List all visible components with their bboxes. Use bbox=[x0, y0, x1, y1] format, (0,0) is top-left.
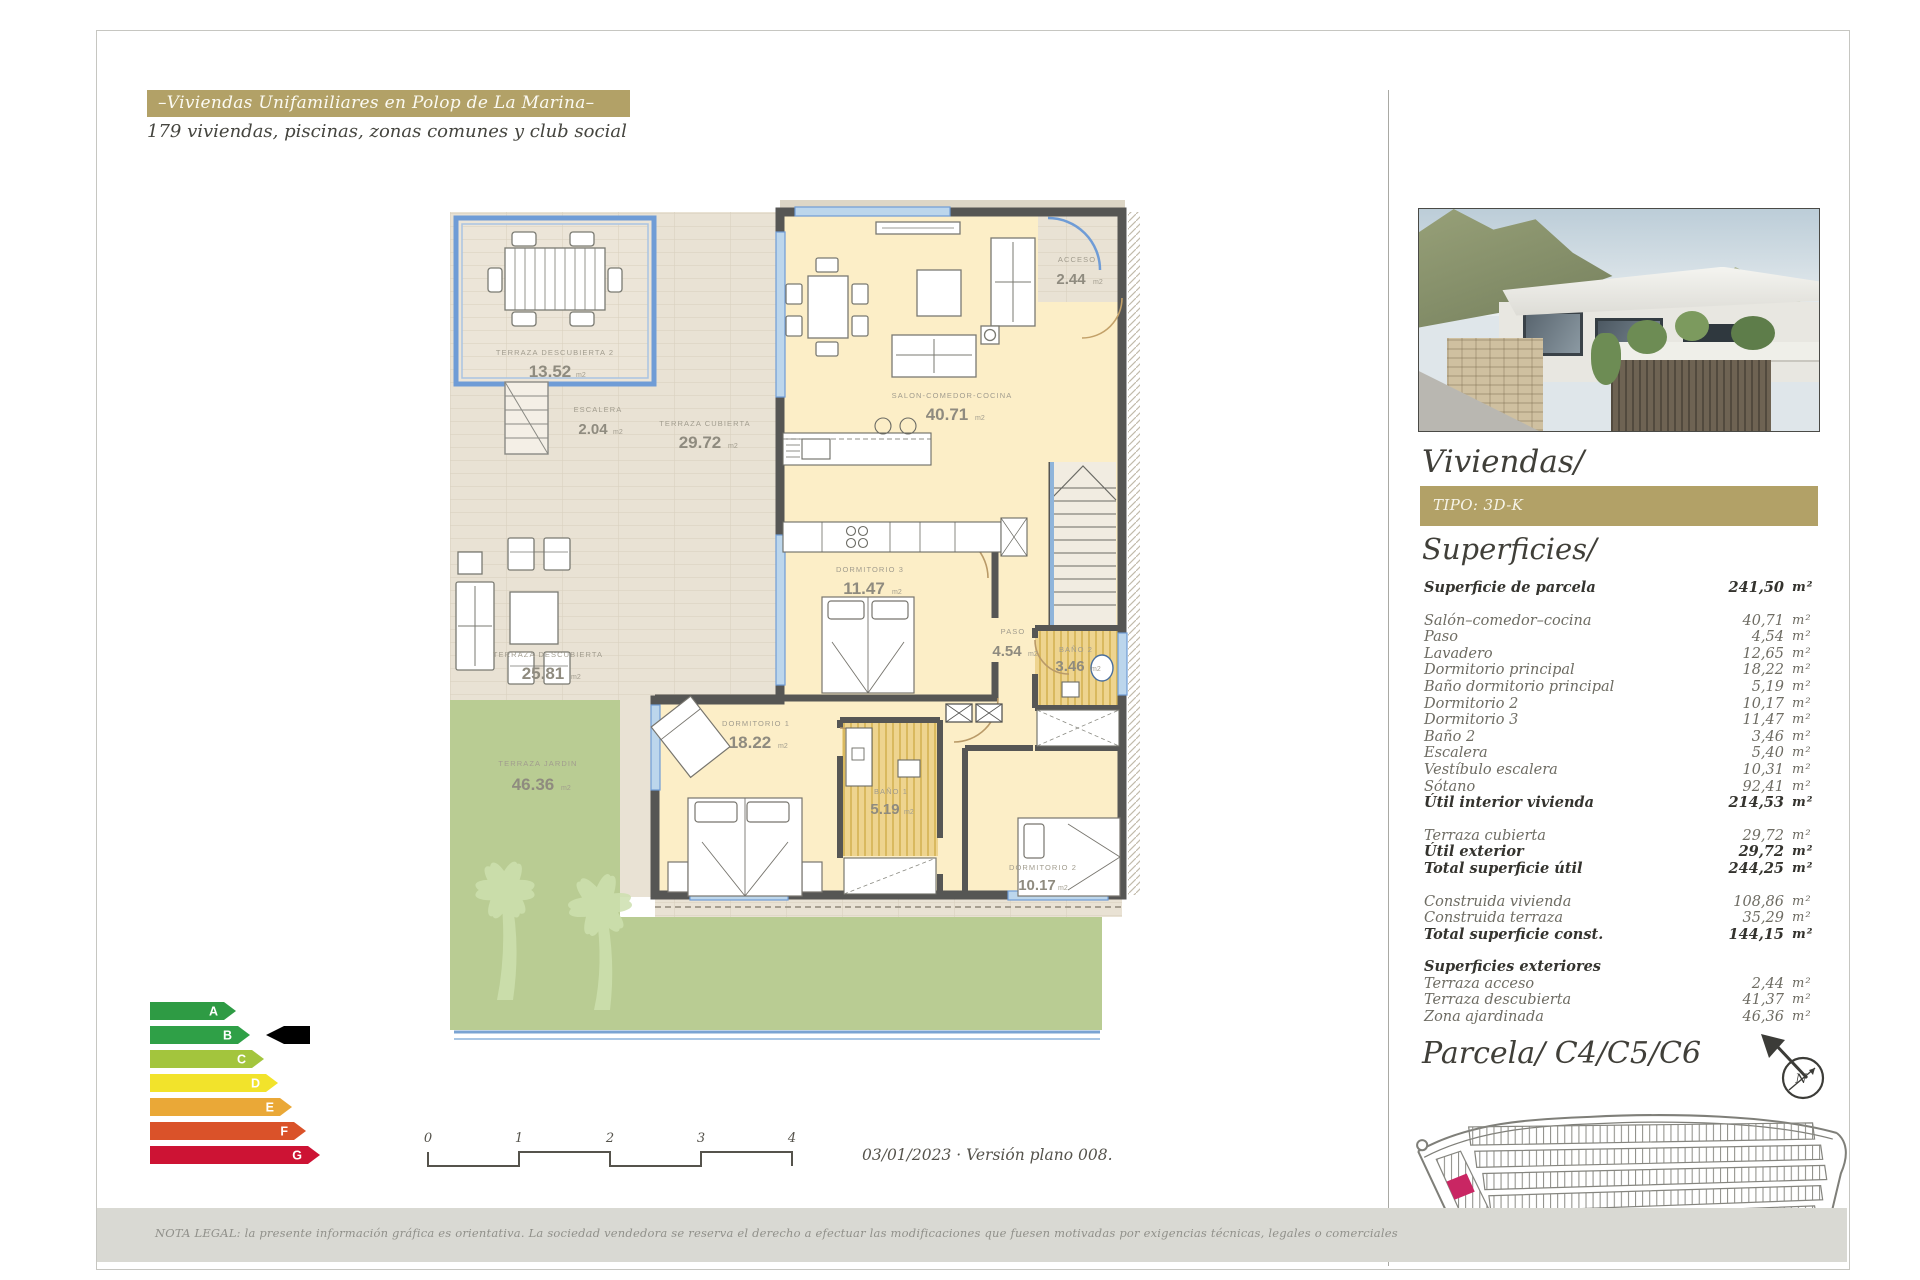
parcela-title: Parcela/ C4/C5/C6 bbox=[1422, 1036, 1701, 1071]
svg-text:m2: m2 bbox=[1028, 651, 1038, 658]
svg-text:m2: m2 bbox=[571, 674, 581, 681]
table-row: Escalera5,40m² bbox=[1424, 745, 1832, 762]
table-row: Terraza acceso2,44m² bbox=[1424, 976, 1832, 993]
svg-text:3.46: 3.46 bbox=[1055, 658, 1084, 675]
table-row: Zona ajardinada46,36m² bbox=[1424, 1009, 1832, 1026]
svg-text:N: N bbox=[1794, 1072, 1807, 1087]
table-row: Útil interior vivienda214,53m² bbox=[1424, 795, 1832, 812]
sidebar-divider bbox=[1388, 90, 1389, 1266]
svg-text:2.44: 2.44 bbox=[1056, 271, 1086, 288]
bed-dorm3 bbox=[822, 597, 914, 693]
scale-bar: 0 1 2 3 4 bbox=[420, 1128, 800, 1174]
svg-text:E: E bbox=[266, 1101, 274, 1115]
svg-text:0: 0 bbox=[424, 1131, 432, 1146]
svg-text:BAÑO 2: BAÑO 2 bbox=[1059, 645, 1093, 654]
table-row: Vestíbulo escalera10,31m² bbox=[1424, 762, 1832, 779]
svg-text:40.71: 40.71 bbox=[926, 405, 969, 424]
svg-text:10.17: 10.17 bbox=[1018, 877, 1056, 894]
svg-text:A: A bbox=[209, 1005, 218, 1019]
svg-text:4.54: 4.54 bbox=[992, 643, 1022, 660]
svg-text:11.47: 11.47 bbox=[843, 579, 885, 598]
svg-text:B: B bbox=[223, 1029, 232, 1043]
superficies-title: Superficies/ bbox=[1422, 532, 1597, 566]
svg-text:G: G bbox=[292, 1149, 302, 1163]
table-row: Paso4,54m² bbox=[1424, 629, 1832, 646]
svg-text:13.52: 13.52 bbox=[529, 362, 572, 381]
energy-label: A B C D E F G bbox=[150, 1002, 340, 1172]
svg-text:m2: m2 bbox=[561, 785, 571, 792]
svg-text:46.36: 46.36 bbox=[512, 775, 555, 794]
photo-plant bbox=[1627, 320, 1667, 354]
svg-text:m2: m2 bbox=[778, 743, 788, 750]
table-row: Terraza descubierta41,37m² bbox=[1424, 992, 1832, 1009]
svg-text:m2: m2 bbox=[1093, 279, 1103, 286]
photo-plant bbox=[1675, 311, 1709, 341]
table-row: Superficie de parcela241,50m² bbox=[1424, 580, 1832, 597]
sidebar-title: Viviendas/ bbox=[1422, 444, 1584, 480]
photo-plant bbox=[1591, 333, 1621, 385]
svg-text:m2: m2 bbox=[975, 415, 985, 422]
table-row: Superficies exteriores bbox=[1424, 959, 1832, 976]
svg-text:18.22: 18.22 bbox=[729, 733, 772, 752]
svg-text:BAÑO 1: BAÑO 1 bbox=[874, 787, 908, 796]
outdoor-lounge-set bbox=[456, 538, 570, 684]
svg-text:m2: m2 bbox=[904, 809, 914, 816]
svg-text:TERRAZA CUBIERTA: TERRAZA CUBIERTA bbox=[659, 419, 751, 428]
svg-text:2.04: 2.04 bbox=[578, 421, 608, 438]
table-row: Dormitorio 311,47m² bbox=[1424, 712, 1832, 729]
legal-note: NOTA LEGAL: la presente información gráf… bbox=[155, 1226, 1398, 1240]
table-row: Salón–comedor–cocina40,71m² bbox=[1424, 613, 1832, 630]
svg-text:DORMITORIO 3: DORMITORIO 3 bbox=[836, 565, 904, 574]
table-row: Total superficie útil244,25m² bbox=[1424, 861, 1832, 878]
svg-text:2: 2 bbox=[605, 1131, 614, 1146]
svg-text:m2: m2 bbox=[613, 429, 623, 436]
svg-text:D: D bbox=[251, 1077, 260, 1091]
svg-text:SALON-COMEDOR-COCINA: SALON-COMEDOR-COCINA bbox=[892, 391, 1013, 400]
tipo-badge: TIPO: 3D-K bbox=[1420, 486, 1818, 526]
table-row: Sótano92,41m² bbox=[1424, 779, 1832, 796]
svg-text:m2: m2 bbox=[1091, 666, 1101, 673]
svg-text:TERRAZA JARDIN: TERRAZA JARDIN bbox=[498, 759, 577, 768]
svg-text:25.81: 25.81 bbox=[522, 664, 565, 683]
page-subtitle: 179 viviendas, piscinas, zonas comunes y… bbox=[147, 121, 627, 142]
page-title: –Viviendas Unifamiliares en Polop de La … bbox=[147, 90, 630, 117]
energy-rating-pointer bbox=[266, 1026, 310, 1044]
svg-text:TERRAZA DESCUBIERTA 2: TERRAZA DESCUBIERTA 2 bbox=[496, 348, 614, 357]
table-row: Total superficie const.144,15m² bbox=[1424, 927, 1832, 944]
svg-text:1: 1 bbox=[515, 1131, 523, 1146]
table-row: Baño 23,46m² bbox=[1424, 729, 1832, 746]
svg-text:m2: m2 bbox=[728, 443, 738, 450]
svg-text:PASO: PASO bbox=[1001, 627, 1026, 636]
table-row: Lavadero12,65m² bbox=[1424, 646, 1832, 663]
svg-text:TERRAZA DESCUBIERTA: TERRAZA DESCUBIERTA bbox=[493, 650, 603, 659]
photo-plant bbox=[1731, 316, 1775, 350]
svg-text:5.19: 5.19 bbox=[870, 801, 899, 818]
svg-text:F: F bbox=[280, 1125, 288, 1139]
table-row: Dormitorio 210,17m² bbox=[1424, 696, 1832, 713]
svg-text:DORMITORIO 2: DORMITORIO 2 bbox=[1009, 863, 1077, 872]
render-photo bbox=[1418, 208, 1820, 432]
svg-text:29.72: 29.72 bbox=[679, 433, 722, 452]
svg-text:C: C bbox=[237, 1053, 246, 1067]
svg-text:m2: m2 bbox=[892, 589, 902, 596]
table-row: Dormitorio principal18,22m² bbox=[1424, 662, 1832, 679]
table-row: Construida terraza35,29m² bbox=[1424, 910, 1832, 927]
table-row: Terraza cubierta29,72m² bbox=[1424, 828, 1832, 845]
svg-text:ACCESO: ACCESO bbox=[1058, 255, 1096, 264]
table-row: Construida vivienda108,86m² bbox=[1424, 894, 1832, 911]
table-row: Baño dormitorio principal5,19m² bbox=[1424, 679, 1832, 696]
superficies-table: Superficie de parcela241,50m² Salón–come… bbox=[1424, 580, 1832, 1026]
plan-version: 03/01/2023 · Versión plano 008. bbox=[862, 1146, 1113, 1164]
terrace-stairs bbox=[505, 382, 548, 454]
svg-text:DORMITORIO 1: DORMITORIO 1 bbox=[722, 719, 790, 728]
svg-text:m2: m2 bbox=[1058, 885, 1068, 892]
svg-text:3: 3 bbox=[697, 1131, 705, 1146]
floor-plan: TERRAZA DESCUBIERTA 2 13.52 m2 ESCALERA … bbox=[450, 200, 1140, 1060]
svg-text:4: 4 bbox=[787, 1131, 796, 1146]
svg-text:m2: m2 bbox=[576, 372, 586, 379]
photo-garage bbox=[1611, 360, 1771, 431]
table-row: Útil exterior29,72m² bbox=[1424, 844, 1832, 861]
svg-text:ESCALERA: ESCALERA bbox=[574, 405, 623, 414]
